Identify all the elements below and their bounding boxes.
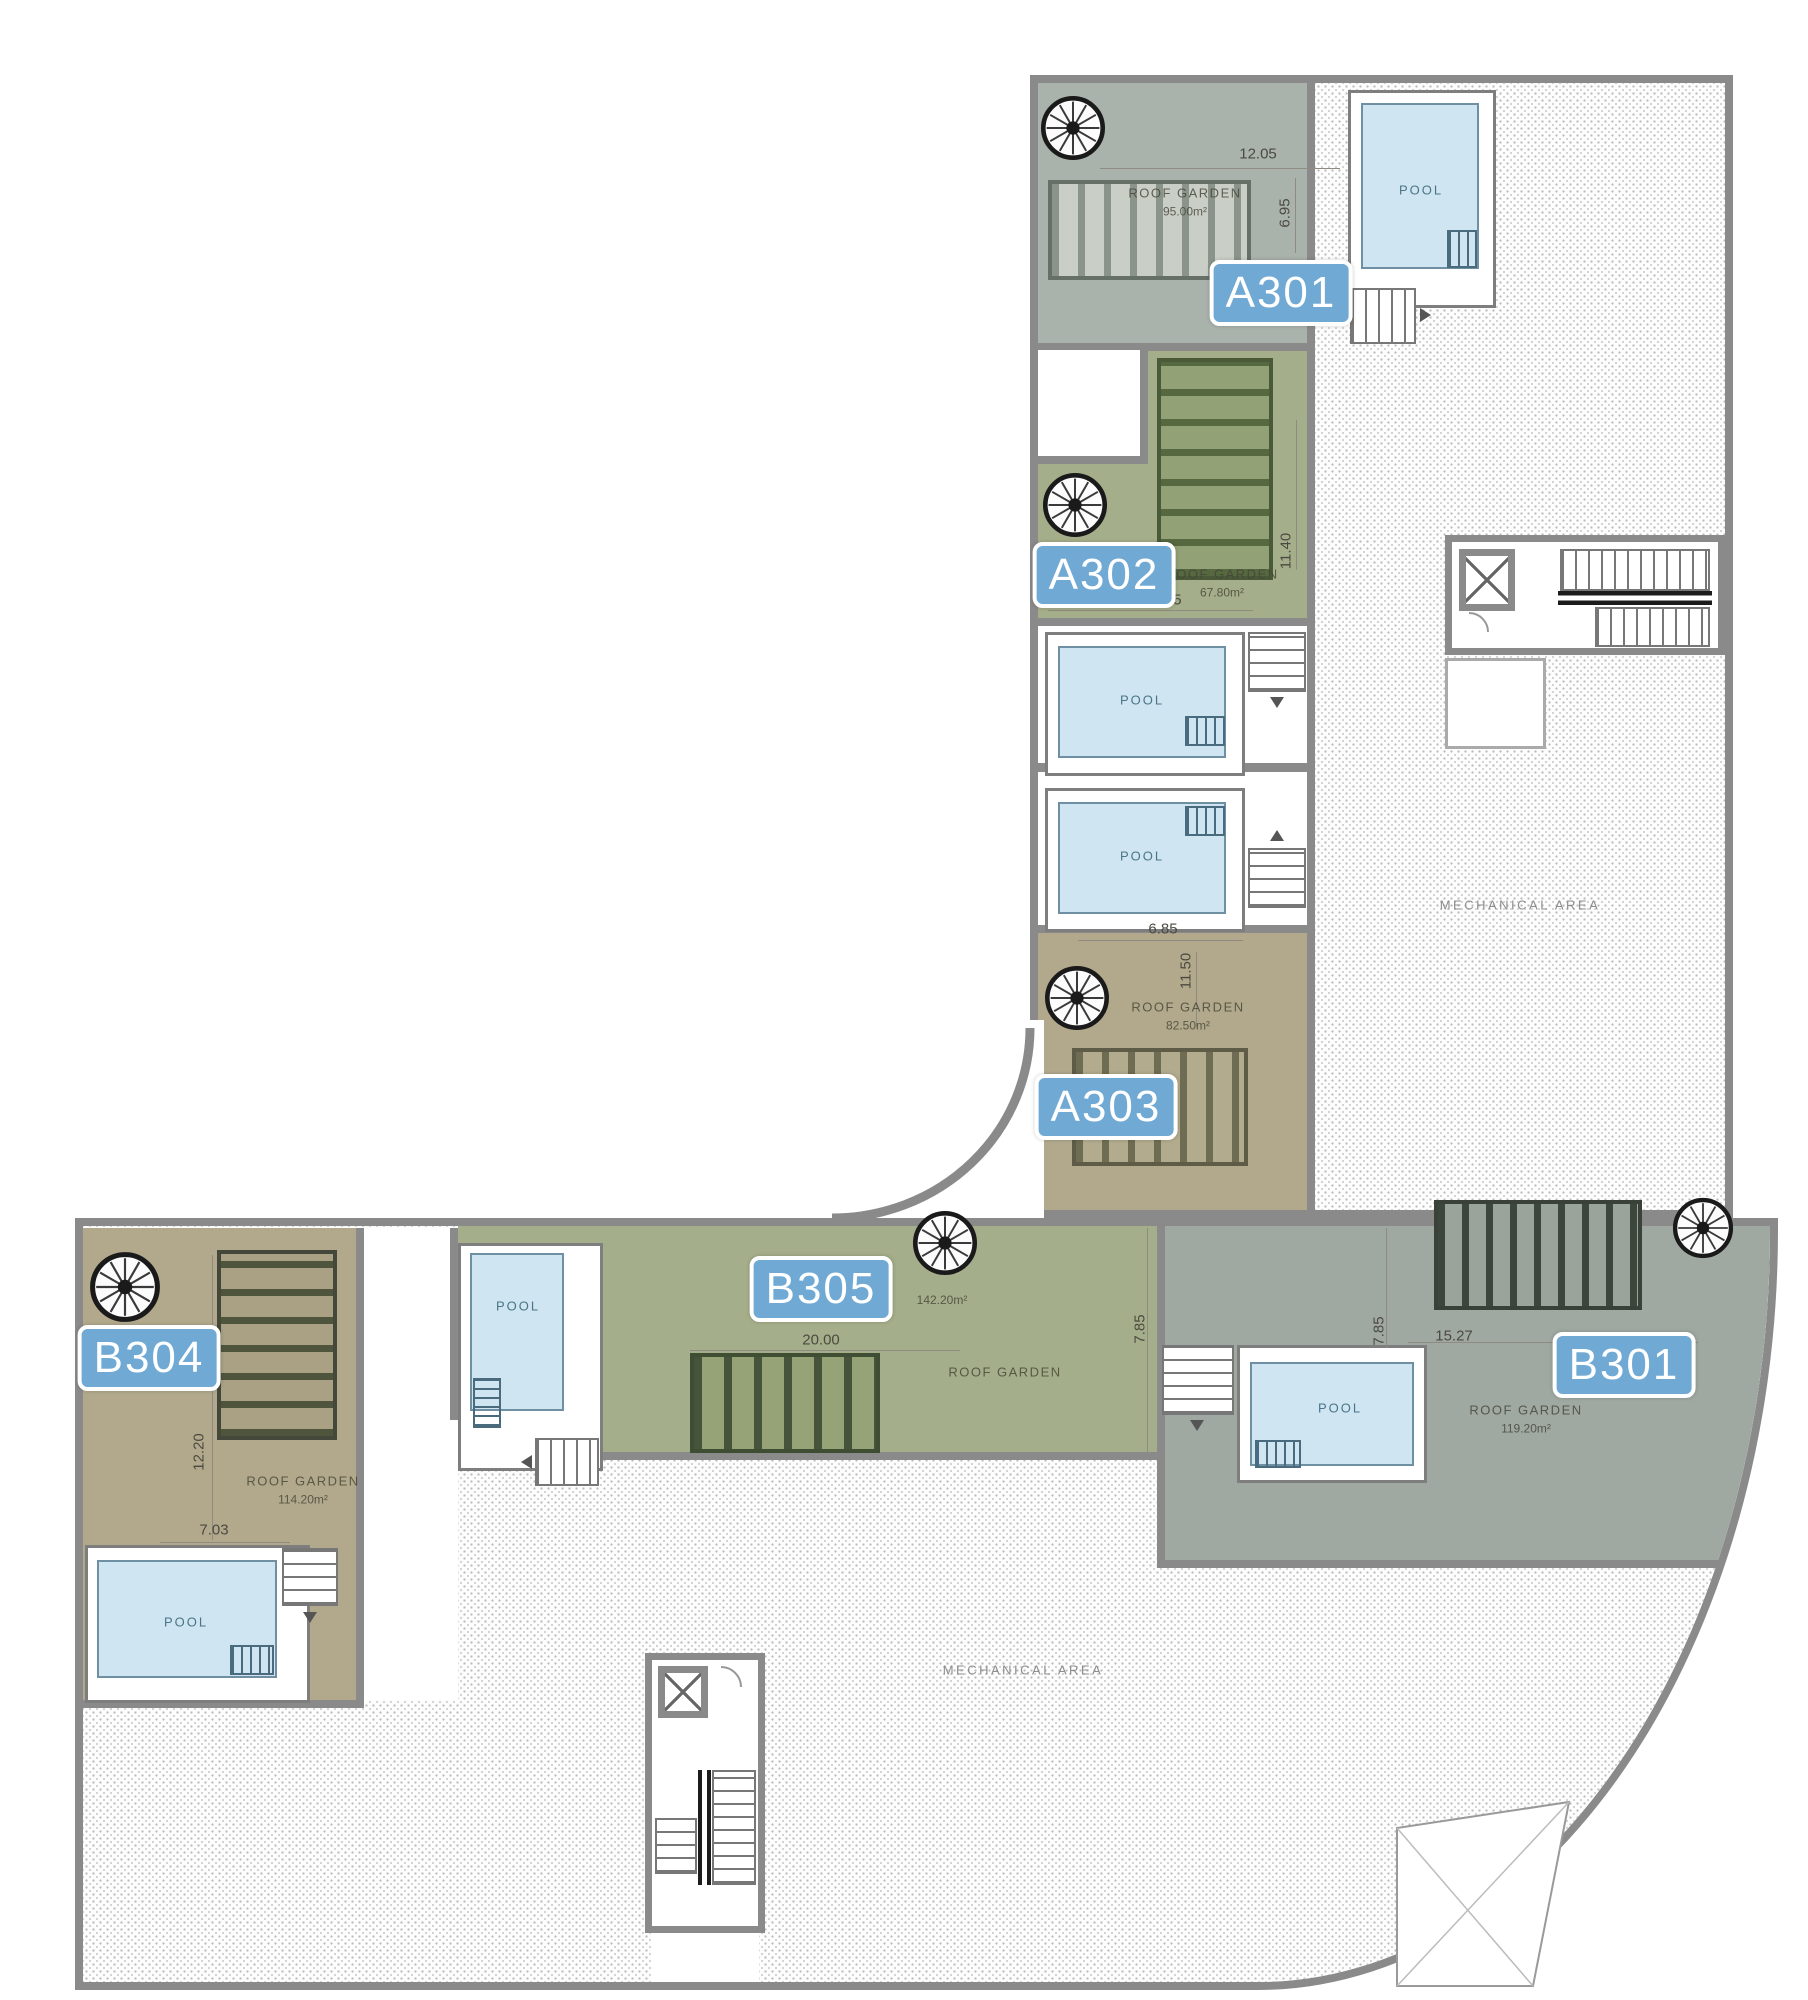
b301-stairs-arrow-icon — [1190, 1420, 1204, 1431]
a301-pool-ladder-icon — [1447, 230, 1477, 268]
a301-stairs-arrow-icon — [1420, 308, 1431, 322]
b304-pool-ladder-icon — [230, 1645, 274, 1675]
unit-badge-a303[interactable]: A303 — [1035, 1074, 1178, 1140]
a302-pool-label: POOL — [1120, 693, 1164, 708]
b304-vent-fan-icon — [89, 1251, 161, 1323]
a303-pool-stairs — [1248, 848, 1306, 908]
mechanical-area-label-top: MECHANICAL AREA — [1440, 898, 1601, 913]
corridor-below-notch — [364, 1420, 458, 1700]
dim-line-b304-left — [212, 1255, 213, 1540]
wall-a302-pools — [1038, 618, 1315, 626]
b304-garden-label: ROOF GARDEN 114.20m² — [246, 1474, 359, 1507]
b305-dim-right: 7.85 — [1132, 1314, 1149, 1343]
b301-pool-ladder-icon — [1255, 1440, 1301, 1468]
b304-pergola — [217, 1250, 337, 1440]
top-core-stairs-lower — [1595, 607, 1710, 647]
a303-pool-stairs-arrow-icon — [1270, 830, 1284, 841]
a301-roof-garden-text: ROOF GARDEN — [1128, 186, 1241, 201]
bottom-elevator-shaft — [658, 1666, 708, 1718]
dim-line-a301-top — [1100, 168, 1340, 169]
a302-garden-label: ROOF GARDEN 67.80m² — [1165, 567, 1278, 600]
a301-dim-top: 12.05 — [1239, 146, 1277, 163]
b301-area-text: 119.20m² — [1469, 1422, 1582, 1436]
wall-notch-right — [450, 1228, 458, 1428]
b304-stairs-arrow-icon — [303, 1612, 317, 1623]
b305-stairs-arrow-icon — [521, 1455, 532, 1469]
top-core-service-pad — [1445, 658, 1546, 749]
a303-vent-fan-icon — [1044, 965, 1110, 1031]
b301-garden-label: ROOF GARDEN 119.20m² — [1469, 1403, 1582, 1436]
wall-b304-right — [356, 1228, 364, 1708]
a303-pool-ladder-icon — [1185, 806, 1225, 836]
b301-dim-left: 7.85 — [1371, 1316, 1388, 1345]
dim-line-a303-top — [1078, 940, 1243, 941]
b305-pool-ladder-icon — [473, 1378, 501, 1428]
a302-dim-right: 11.40 — [1278, 533, 1295, 569]
b301-roof-garden-text: ROOF GARDEN — [1469, 1403, 1582, 1418]
a302-pool-ladder-icon — [1185, 716, 1225, 746]
a303-area-text: 82.50m² — [1131, 1019, 1244, 1033]
unit-badge-a301[interactable]: A301 — [1210, 260, 1353, 326]
b304-roof-garden-text: ROOF GARDEN — [246, 1474, 359, 1489]
a303-dim-top: 6.85 — [1148, 921, 1177, 938]
a301-stairs — [1350, 288, 1416, 344]
b305-dim-top: 20.00 — [802, 1332, 840, 1349]
a302-pool-stairs — [1248, 632, 1306, 692]
a303-dim-left: 11.50 — [1178, 953, 1195, 989]
b301-dim-top: 15.27 — [1435, 1328, 1473, 1345]
b305-pool-label: POOL — [496, 1299, 540, 1314]
b305-stairs — [535, 1438, 599, 1486]
bottom-core-landing — [698, 1770, 711, 1885]
b305-area-text: 142.20m² — [917, 1293, 968, 1307]
dim-line-a301-right — [1295, 178, 1296, 253]
b304-pool-label: POOL — [164, 1615, 208, 1630]
dim-line-a302-bottom — [1048, 610, 1253, 611]
unit-badge-b304[interactable]: B304 — [78, 1325, 221, 1391]
a301-pool-label: POOL — [1399, 183, 1443, 198]
b304-dim-bottom: 7.03 — [199, 1522, 228, 1539]
top-core-stairs-upper — [1560, 549, 1710, 591]
b304-area-text: 114.20m² — [246, 1493, 359, 1507]
b301-stairs — [1162, 1345, 1234, 1415]
a302-vent-fan-icon — [1042, 472, 1108, 538]
roof-floor-plan: 12.05 6.95 5.85 11.40 6.85 11.50 20.00 7… — [0, 0, 1808, 2000]
unit-badge-b301[interactable]: B301 — [1553, 1332, 1696, 1398]
b304-dim-left: 12.20 — [191, 1433, 208, 1471]
a303-pool-label: POOL — [1120, 849, 1164, 864]
a301-area-text: 95.00m² — [1128, 205, 1241, 219]
b305-vent-fan-icon — [912, 1210, 978, 1276]
b305-pergola — [690, 1353, 880, 1453]
a302-area-text: 67.80m² — [1165, 586, 1278, 600]
b301-pool-label: POOL — [1318, 1401, 1362, 1416]
wall-units-mechanical — [1307, 83, 1315, 1210]
dim-line-b305-top — [690, 1350, 960, 1351]
core-exit-strip — [651, 1933, 759, 1982]
wall-b301-mechanical — [1165, 1560, 1720, 1568]
top-core-landing — [1558, 591, 1712, 605]
bottom-core-stairs-side — [655, 1818, 697, 1874]
unit-badge-a302[interactable]: A302 — [1033, 542, 1176, 608]
b305-roof-garden-text: ROOF GARDEN — [948, 1365, 1061, 1380]
a302-pool-stairs-arrow-icon — [1270, 697, 1284, 708]
bottom-core-stairs-main — [712, 1770, 756, 1885]
a303-roof-garden-text: ROOF GARDEN — [1131, 1000, 1244, 1015]
a301-dim-right: 6.95 — [1277, 198, 1294, 227]
b304-stairs — [282, 1548, 338, 1606]
a302-utility-room — [1038, 350, 1148, 464]
top-elevator-shaft — [1459, 549, 1515, 611]
a302-roof-garden-text: ROOF GARDEN — [1165, 567, 1278, 582]
lightwell-notch — [364, 1228, 450, 1420]
concave-corner-wall — [760, 1000, 1050, 1240]
b301-vent-fan-icon — [1672, 1197, 1734, 1259]
b301-pergola — [1434, 1200, 1642, 1310]
a301-vent-fan-icon — [1040, 95, 1106, 161]
unit-badge-b305[interactable]: B305 — [750, 1256, 893, 1322]
dim-line-a302-right — [1296, 420, 1297, 570]
mechanical-area-label-bottom: MECHANICAL AREA — [943, 1663, 1104, 1678]
a303-garden-label: ROOF GARDEN 82.50m² — [1131, 1000, 1244, 1033]
dim-line-b304-bottom — [160, 1542, 290, 1543]
service-cut-bracing — [1393, 1798, 1573, 1990]
a301-garden-label: ROOF GARDEN 95.00m² — [1128, 186, 1241, 219]
